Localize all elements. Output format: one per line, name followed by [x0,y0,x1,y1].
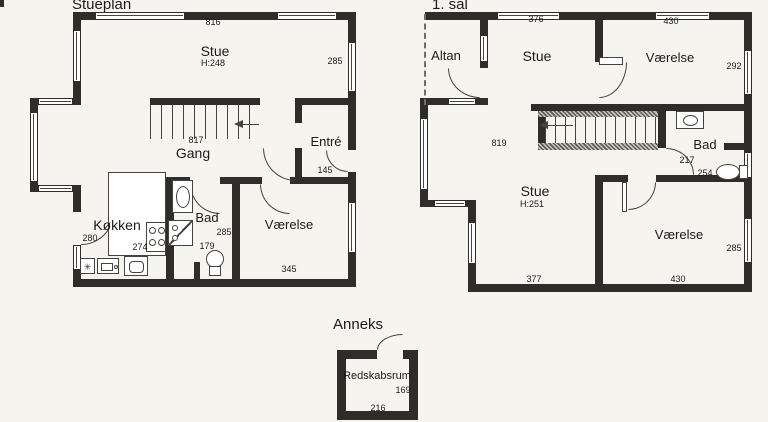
measurement: 816 [205,18,220,27]
wall [337,350,346,420]
measurement: 254 [697,169,712,178]
ceiling-height: H:251 [520,200,544,209]
measurement: 430 [670,275,685,284]
room-label-redskabsrum: Redskabsrum [343,371,411,382]
floor-plan-scan: Stueplan [0,0,768,422]
measurement: 292 [726,62,741,71]
room-label-vaerelse: Værelse [265,218,313,231]
measurement: 376 [528,15,543,24]
measurement: 430 [663,17,678,26]
measurement: 819 [491,139,506,148]
door-arc [377,334,403,350]
measurement: 274 [132,243,147,252]
room-label-altan: Altan [431,49,461,62]
measurement: 216 [370,404,385,413]
measurement: 179 [199,242,214,251]
room-label-stue: Stue [201,44,230,58]
room-label-stue-top: Stue [523,49,552,63]
room-label-gang: Gang [176,146,210,160]
measurement: 377 [526,275,541,284]
measurement: 345 [281,265,296,274]
room-label-vaerelse-bottom: Værelse [655,228,703,241]
measurement: 817 [188,136,203,145]
ceiling-height: H:248 [201,59,225,68]
room-label-kokken: Køkken [93,218,140,232]
plan-title: Anneks [333,317,383,332]
measurement: 145 [317,166,332,175]
room-label-entre: Entré [310,135,341,148]
plan-title: 1. sal [432,0,468,12]
room-label-vaerelse-top: Værelse [646,51,694,64]
measurement: 280 [82,234,97,243]
measurement: 285 [216,228,231,237]
measurement: 217 [679,156,694,165]
room-label-bad: Bad [693,138,716,151]
measurement: 169 [395,386,410,395]
measurement: 285 [726,244,741,253]
room-label-stue-bottom: Stue [521,184,550,198]
room-label-bad: Bad [195,211,218,224]
measurement: 285 [327,57,342,66]
plan-title: Stueplan [72,0,131,12]
